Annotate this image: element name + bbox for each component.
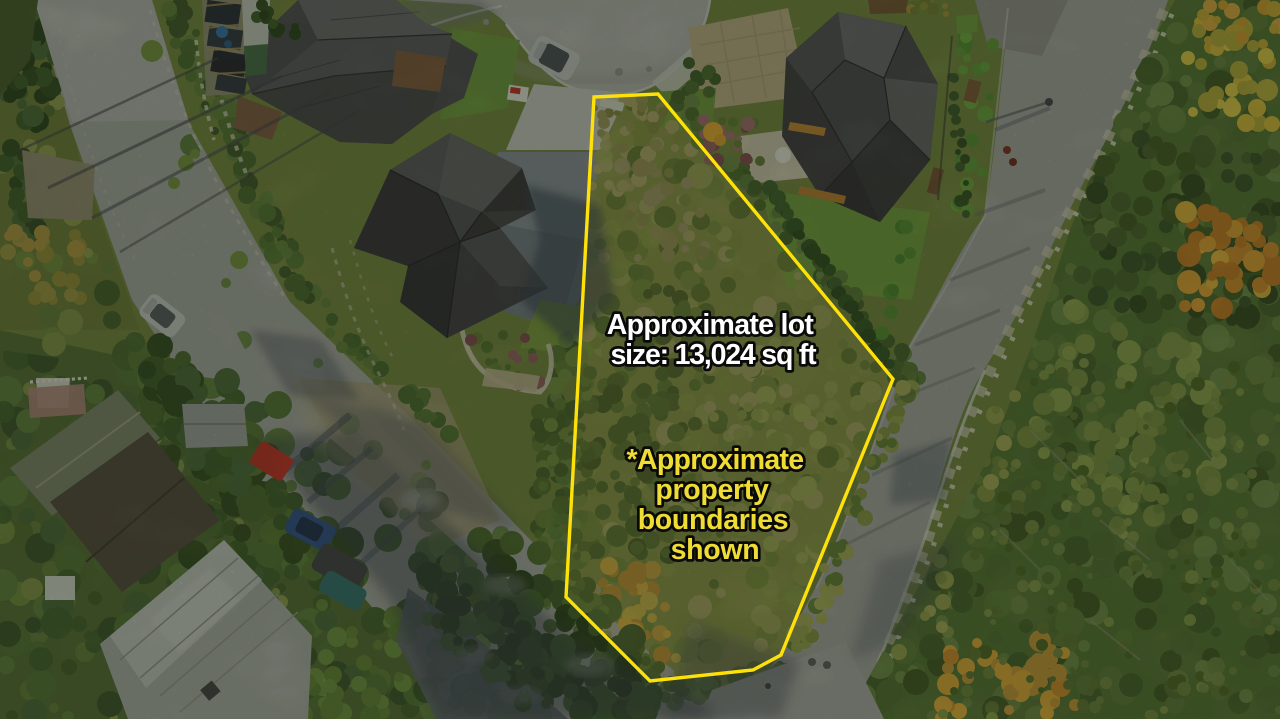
svg-text:property: property: [655, 474, 769, 506]
svg-text:*Approximate: *Approximate: [627, 444, 804, 476]
svg-text:Approximate lot: Approximate lot: [607, 309, 815, 341]
svg-text:boundaries: boundaries: [638, 504, 789, 536]
svg-text:size: 13,024 sq ft: size: 13,024 sq ft: [611, 339, 818, 371]
svg-text:shown: shown: [671, 534, 760, 566]
